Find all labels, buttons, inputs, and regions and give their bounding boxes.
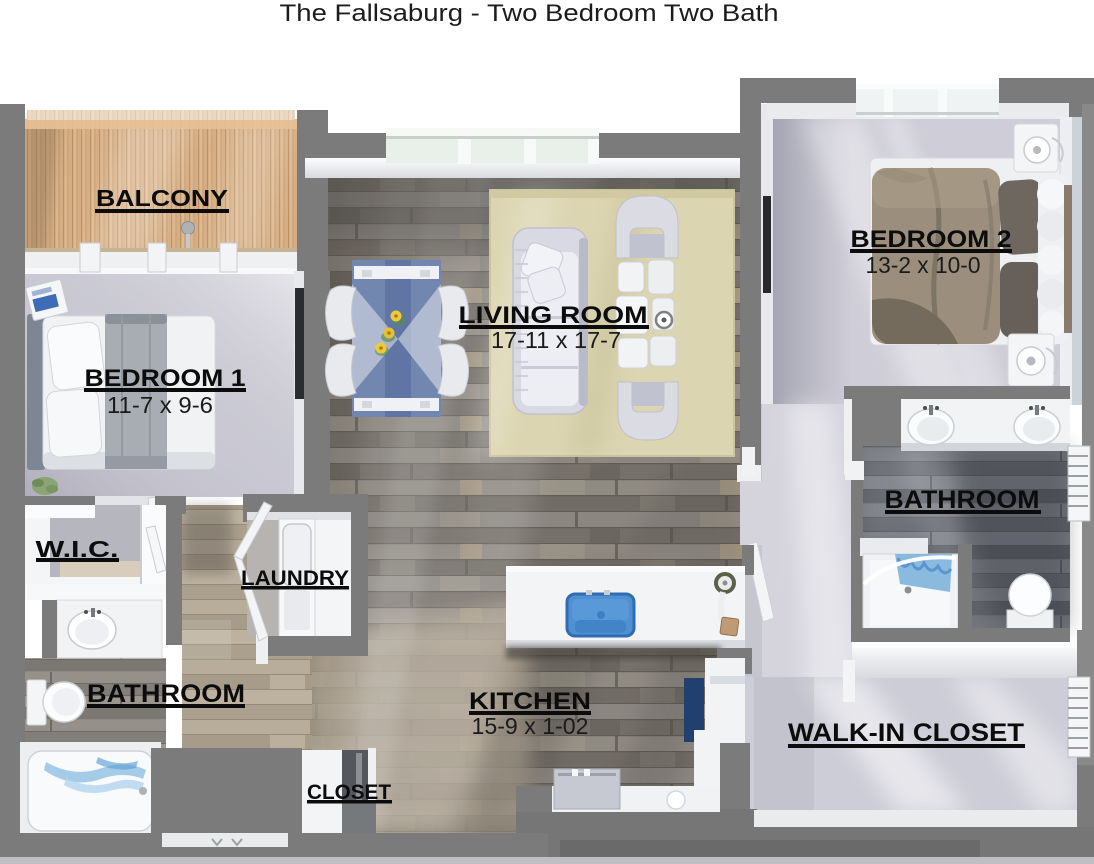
svg-text:BEDROOM 1: BEDROOM 1 xyxy=(85,365,246,392)
svg-text:BATHROOM: BATHROOM xyxy=(87,680,245,708)
svg-text:KITCHEN: KITCHEN xyxy=(469,688,591,715)
svg-text:The Fallsaburg - Two Bedroom T: The Fallsaburg - Two Bedroom Two Bath xyxy=(280,0,779,27)
svg-text:BEDROOM 2: BEDROOM 2 xyxy=(851,226,1012,253)
svg-text:13-2 x 10-0: 13-2 x 10-0 xyxy=(866,252,981,278)
svg-text:BATHROOM: BATHROOM xyxy=(885,486,1040,514)
svg-text:17-11 x 17-7: 17-11 x 17-7 xyxy=(491,327,621,353)
svg-text:WALK-IN CLOSET: WALK-IN CLOSET xyxy=(788,719,1024,747)
svg-text:LIVING ROOM: LIVING ROOM xyxy=(459,302,648,329)
svg-text:BALCONY: BALCONY xyxy=(96,185,228,211)
svg-text:11-7 x 9-6: 11-7 x 9-6 xyxy=(107,392,213,418)
svg-text:15-9 x 1-02: 15-9 x 1-02 xyxy=(472,713,589,739)
